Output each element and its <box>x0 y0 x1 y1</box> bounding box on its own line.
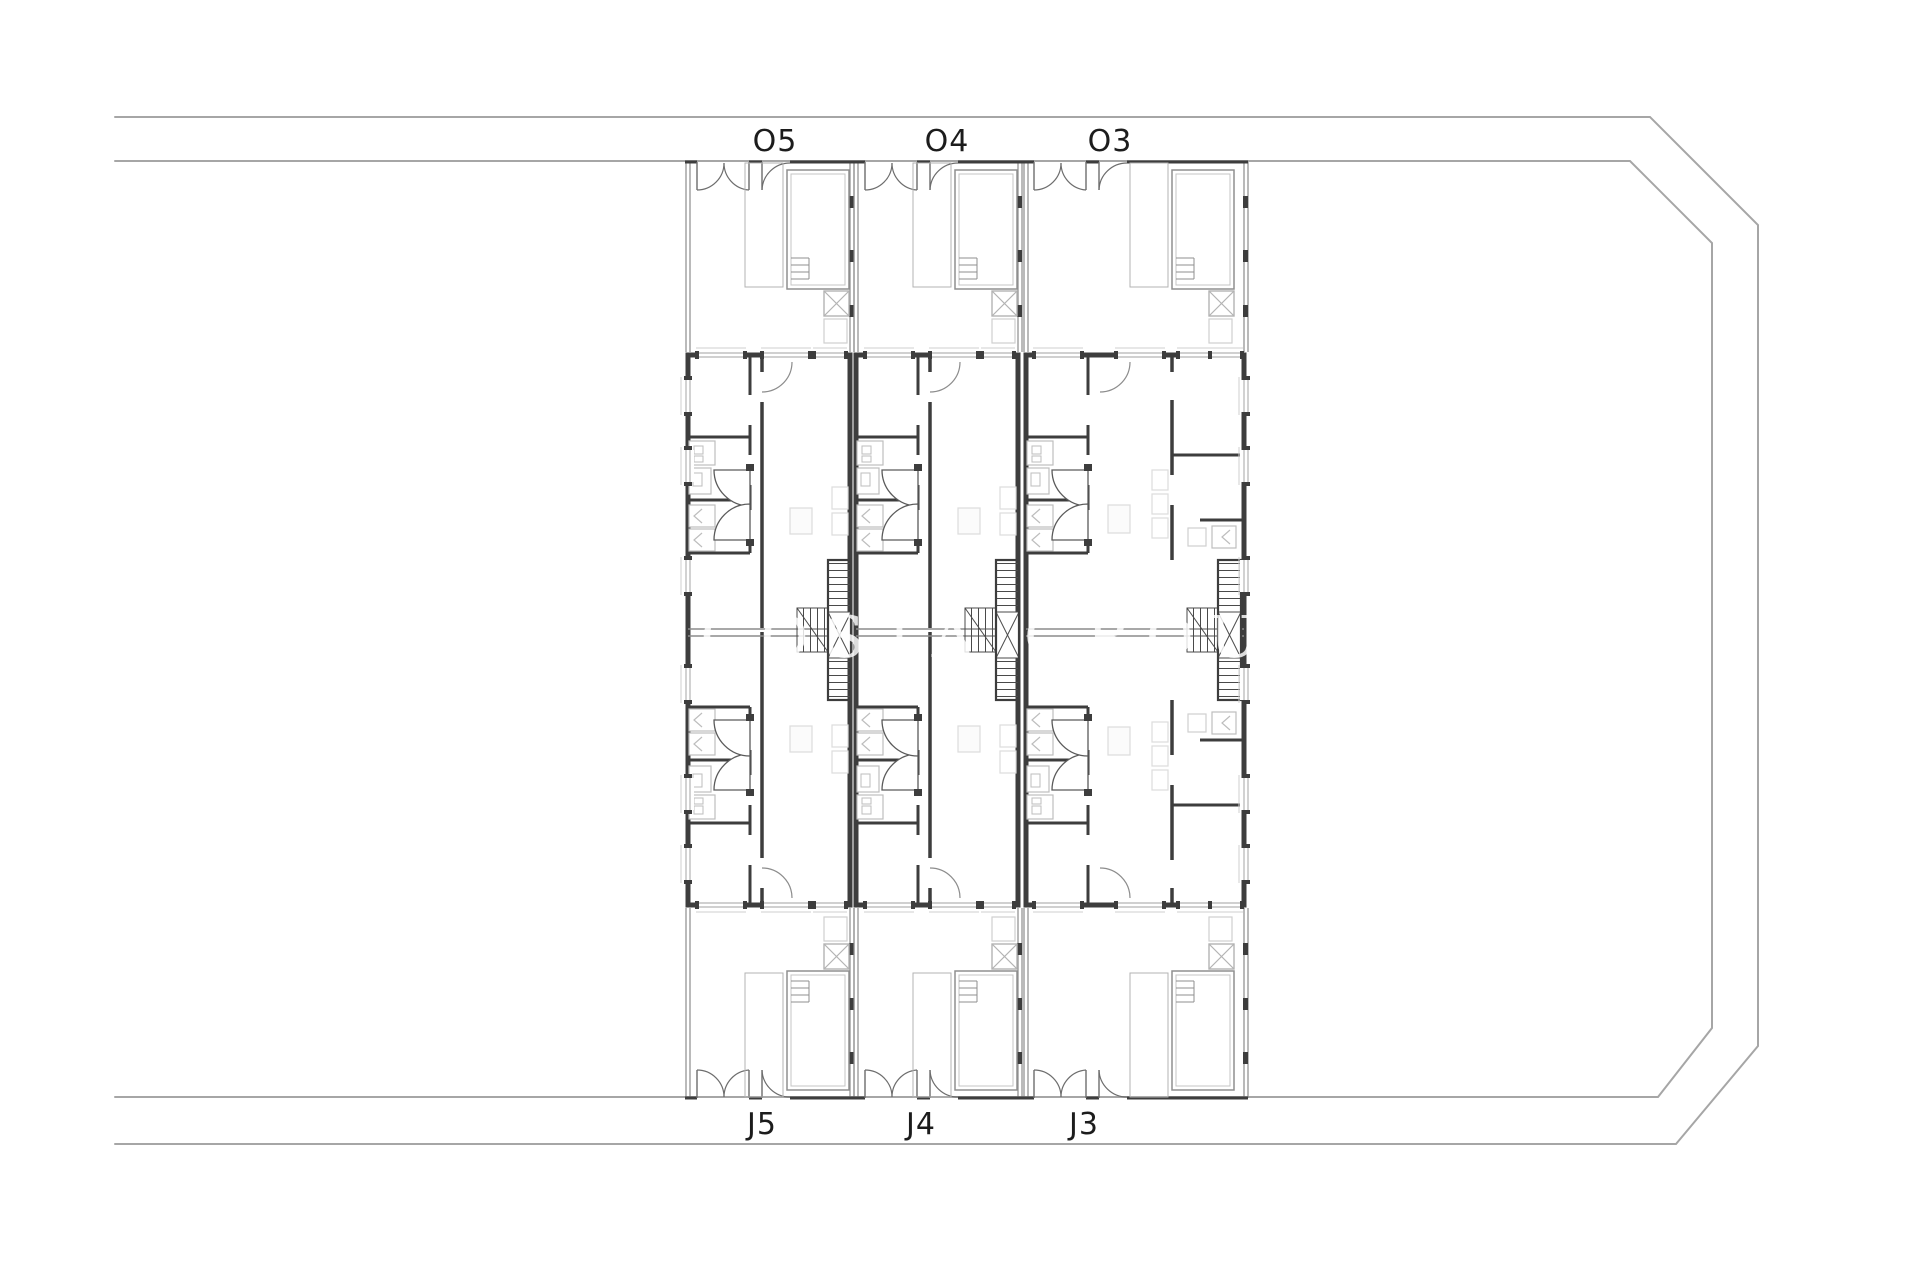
unit-label-o4: O4 <box>925 124 970 159</box>
watermark: COSTA GROUP <box>701 603 1330 671</box>
unit-labels-bottom: J5 J4 J3 <box>745 1107 1099 1142</box>
half-unit-j3 <box>1022 630 1248 1098</box>
unit-label-j5: J5 <box>745 1107 777 1142</box>
unit-label-j4: J4 <box>904 1107 936 1142</box>
unit-label-o5: O5 <box>753 124 798 159</box>
floor-plan-svg: O5 O4 O3 J5 J4 J3 COSTA GROUP <box>0 0 1920 1280</box>
unit-label-j3: J3 <box>1067 1107 1099 1142</box>
unit-label-o3: O3 <box>1088 124 1133 159</box>
floor-plan-page: O5 O4 O3 J5 J4 J3 COSTA GROUP <box>0 0 1920 1280</box>
unit-labels-top: O5 O4 O3 <box>753 124 1133 159</box>
half-unit-o3 <box>1022 162 1248 630</box>
